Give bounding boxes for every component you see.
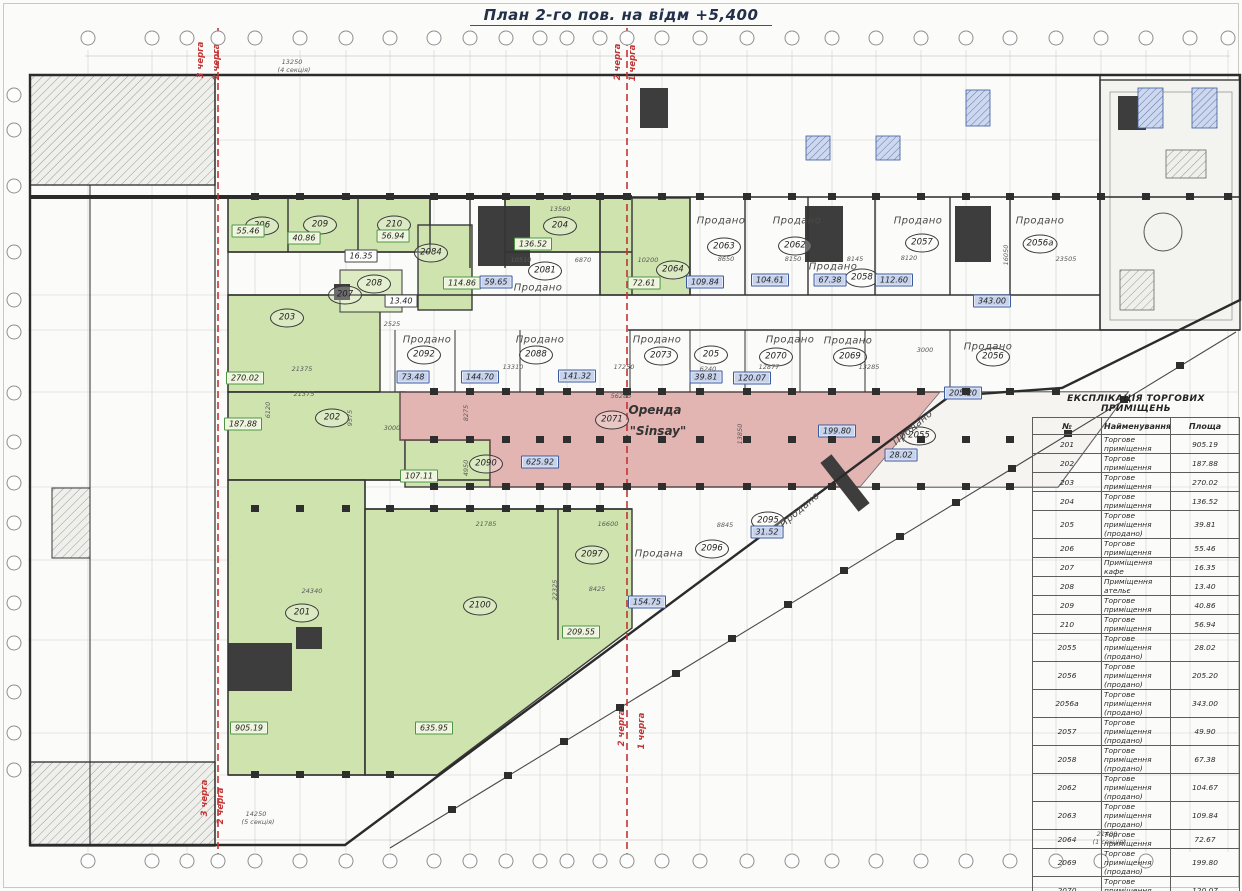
column-marker [788, 483, 796, 490]
axis-marker [959, 854, 974, 869]
column-marker [466, 483, 474, 490]
room-name: Торгове приміщення (продано) [1102, 774, 1171, 802]
area-box: 120.07 [733, 372, 771, 385]
axis-marker [211, 854, 226, 869]
room-name: Торгове приміщення (продано) [1102, 877, 1171, 891]
legend-row: 2069Торгове приміщення (продано)199.80 [1033, 849, 1240, 877]
dim-label: 6120 [264, 402, 272, 419]
dim-label: 14250 [246, 810, 267, 818]
axis-marker [1049, 31, 1064, 46]
column-marker [430, 483, 438, 490]
axis-marker [293, 854, 308, 869]
axis-marker [81, 854, 96, 869]
column-marker [466, 505, 474, 512]
room-name: Приміщення кафе [1102, 558, 1171, 577]
dim-label: 21375 [292, 365, 313, 373]
room-bubble-2092: 2092 [407, 346, 441, 365]
dim-label: 21785 [476, 520, 497, 528]
column-marker [1097, 193, 1105, 200]
phase-label: 1 черга [637, 713, 647, 750]
room-area: 905.19 [1171, 435, 1240, 454]
area-box: 209.55 [562, 626, 600, 639]
axis-marker [655, 854, 670, 869]
column-marker [1006, 483, 1014, 490]
sold-label: Продано [403, 335, 451, 346]
area-box: 56.94 [377, 230, 410, 243]
legend-row: 210Торгове приміщення56.94 [1033, 615, 1240, 634]
axis-marker [293, 31, 308, 46]
room-name: Торгове приміщення [1102, 596, 1171, 615]
axis-marker [180, 31, 195, 46]
area-box: 144.70 [461, 371, 499, 384]
room-number: 2069 [1033, 849, 1102, 877]
column-marker [952, 499, 960, 506]
legend-col-name: Найменування [1102, 418, 1171, 435]
axis-marker [914, 31, 929, 46]
axis-marker [248, 31, 263, 46]
axis-marker [7, 123, 22, 138]
legend-row: 2058Торгове приміщення (продано)67.38 [1033, 746, 1240, 774]
column-marker [251, 505, 259, 512]
room-area: 55.46 [1171, 539, 1240, 558]
area-box: 16.35 [345, 250, 378, 263]
area-box: 107.11 [400, 470, 438, 483]
column-marker [251, 771, 259, 778]
legend-row: 208Приміщення ательє13.40 [1033, 577, 1240, 596]
axis-marker [7, 88, 22, 103]
axis-marker [145, 31, 160, 46]
column-marker [623, 193, 631, 200]
sold-label: Продано [894, 216, 942, 227]
dim-label: 10200 [638, 256, 659, 264]
room-name: Торгове приміщення (продано) [1102, 634, 1171, 662]
sold-label: Продано [824, 336, 872, 347]
dim-label: 8145 [847, 255, 864, 263]
column-marker [962, 436, 970, 443]
axis-marker [1003, 31, 1018, 46]
axis-marker [7, 476, 22, 491]
legend-row: 205Торгове приміщення (продано)39.81 [1033, 511, 1240, 539]
column-marker [828, 388, 836, 395]
room-area: 136.52 [1171, 492, 1240, 511]
column-marker [596, 388, 604, 395]
dim-label: 8845 [717, 521, 734, 529]
area-box: 635.95 [415, 722, 453, 735]
axis-marker [7, 435, 22, 450]
dim-label: 9575 [346, 410, 354, 427]
axis-marker [7, 556, 22, 571]
column-marker [296, 771, 304, 778]
column-marker [1006, 388, 1014, 395]
dim-label: 8150 [785, 255, 802, 263]
column-marker [296, 193, 304, 200]
sold-label: Продано [514, 283, 562, 294]
axis-marker [785, 31, 800, 46]
axis-marker [1183, 31, 1198, 46]
axis-marker [7, 685, 22, 700]
column-marker [430, 193, 438, 200]
area-box: 270.02 [226, 372, 264, 385]
axis-marker [825, 31, 840, 46]
column-marker [696, 388, 704, 395]
area-box: 55.46 [232, 225, 265, 238]
column-marker [536, 483, 544, 490]
area-box: 905.19 [230, 722, 268, 735]
axis-marker [593, 854, 608, 869]
axis-marker [785, 854, 800, 869]
axis-marker [7, 596, 22, 611]
room-number: 207 [1033, 558, 1102, 577]
axis-marker [869, 31, 884, 46]
column-marker [430, 388, 438, 395]
room-area: 270.02 [1171, 473, 1240, 492]
column-marker [788, 388, 796, 395]
area-box: 136.52 [514, 238, 552, 251]
column-marker [536, 193, 544, 200]
area-box: 31.52 [751, 526, 784, 539]
dim-label: 16600 [598, 520, 619, 528]
column-marker [536, 436, 544, 443]
axis-marker [620, 31, 635, 46]
column-marker [560, 738, 568, 745]
axis-marker [959, 31, 974, 46]
legend-row: 2056Торгове приміщення (продано)205.20 [1033, 662, 1240, 690]
area-box: 28.02 [885, 449, 918, 462]
legend-row: 2062Торгове приміщення (продано)104.67 [1033, 774, 1240, 802]
column-marker [917, 193, 925, 200]
room-bubble-2084: 2084 [414, 244, 448, 263]
column-marker [962, 483, 970, 490]
room-number: 2063 [1033, 802, 1102, 830]
room-name: Торгове приміщення (продано) [1102, 746, 1171, 774]
column-marker [784, 601, 792, 608]
column-marker [1142, 193, 1150, 200]
axis-marker [1221, 31, 1236, 46]
column-marker [466, 193, 474, 200]
room-bubble-2057: 2057 [905, 234, 939, 253]
phase-label: 2 черга [617, 710, 627, 747]
dim-label: 3000 [917, 346, 934, 354]
legend-row: 2070Торгове приміщення (продано)120.07 [1033, 877, 1240, 891]
legend-row: 204Торгове приміщення136.52 [1033, 492, 1240, 511]
legend-row: 2057Торгове приміщення (продано)49.90 [1033, 718, 1240, 746]
column-marker [623, 388, 631, 395]
dim-label: 13250 [282, 58, 303, 66]
column-marker [658, 388, 666, 395]
axis-marker [145, 854, 160, 869]
floor-plan-sheet: План 2-го пов. на відм +5,400 2062092102… [0, 0, 1242, 891]
area-box: 625.92 [521, 456, 559, 469]
column-marker [788, 436, 796, 443]
axis-marker [7, 325, 22, 340]
room-bubble-207: 207 [328, 286, 362, 305]
axis-marker [7, 179, 22, 194]
dim-label: 2525 [384, 320, 401, 328]
column-marker [828, 193, 836, 200]
axis-marker [693, 854, 708, 869]
column-marker [616, 704, 624, 711]
axis-marker [7, 726, 22, 741]
column-marker [728, 635, 736, 642]
room-name: Приміщення ательє [1102, 577, 1171, 596]
dim-label: 10510 [511, 256, 532, 264]
legend-row: 209Торгове приміщення40.86 [1033, 596, 1240, 615]
column-marker [696, 436, 704, 443]
room-area: 120.07 [1171, 877, 1240, 891]
column-marker [502, 193, 510, 200]
dim-label: 4950 [462, 460, 470, 477]
axis-marker [7, 245, 22, 260]
phase-label: 2 черга [212, 44, 222, 81]
room-area: 40.86 [1171, 596, 1240, 615]
room-area: 205.20 [1171, 662, 1240, 690]
dim-label: 3000 [384, 424, 401, 432]
room-name: Торгове приміщення [1102, 830, 1171, 849]
column-marker [840, 567, 848, 574]
dim-label: 13285 [859, 363, 880, 371]
column-marker [872, 388, 880, 395]
phase-label: 1 черга [628, 45, 638, 82]
column-marker [342, 193, 350, 200]
column-marker [563, 483, 571, 490]
room-number: 2062 [1033, 774, 1102, 802]
column-marker [696, 483, 704, 490]
axis-marker [593, 31, 608, 46]
room-name: Торгове приміщення [1102, 454, 1171, 473]
phase-label: 2 черга [216, 788, 226, 825]
column-marker [448, 806, 456, 813]
legend-row: 2056аТоргове приміщення (продано)343.00 [1033, 690, 1240, 718]
area-box: 104.61 [751, 274, 789, 287]
dim-label: 8650 [718, 255, 735, 263]
axis-marker [248, 854, 263, 869]
column-marker [430, 505, 438, 512]
room-area: 67.38 [1171, 746, 1240, 774]
legend-row: 2063Торгове приміщення (продано)109.84 [1033, 802, 1240, 830]
room-area: 187.88 [1171, 454, 1240, 473]
room-name: Торгове приміщення (продано) [1102, 662, 1171, 690]
axis-marker [427, 854, 442, 869]
axis-marker [499, 854, 514, 869]
column-marker [788, 193, 796, 200]
column-marker [502, 505, 510, 512]
legend-col-number: № [1033, 418, 1102, 435]
axis-marker [7, 763, 22, 778]
column-marker [872, 483, 880, 490]
room-number: 2057 [1033, 718, 1102, 746]
legend-row: 202Торгове приміщення187.88 [1033, 454, 1240, 473]
column-marker [386, 193, 394, 200]
column-marker [342, 771, 350, 778]
column-marker [504, 772, 512, 779]
room-bubble-205: 205 [694, 346, 728, 365]
room-bubble-201: 201 [285, 604, 319, 623]
room-bubble-208: 208 [357, 275, 391, 294]
column-marker [743, 388, 751, 395]
dim-label: 22325 [551, 580, 559, 601]
legend-title: ЕКСПЛІКАЦІЯ ТОРГОВИХ ПРИМІЩЕНЬ [1032, 394, 1240, 414]
column-marker [658, 483, 666, 490]
legend-table: ЕКСПЛІКАЦІЯ ТОРГОВИХ ПРИМІЩЕНЬ № Наймену… [1032, 394, 1240, 891]
axis-marker [1139, 31, 1154, 46]
axis-marker [620, 854, 635, 869]
dim-label: 13560 [550, 205, 571, 213]
room-name: Торгове приміщення [1102, 492, 1171, 511]
room-number: 2056а [1033, 690, 1102, 718]
room-number: 210 [1033, 615, 1102, 634]
dim-label: 12877 [759, 363, 780, 371]
column-marker [917, 483, 925, 490]
area-box: 67.38 [814, 274, 847, 287]
legend-header-row: № Найменування Площа [1033, 418, 1240, 435]
column-marker [917, 436, 925, 443]
room-bubble-2088: 2088 [519, 346, 553, 365]
room-name: Торгове приміщення (продано) [1102, 718, 1171, 746]
column-marker [596, 483, 604, 490]
column-marker [596, 193, 604, 200]
room-area: 199.80 [1171, 849, 1240, 877]
column-marker [1052, 193, 1060, 200]
column-marker [466, 436, 474, 443]
dim-label: 16050 [1002, 245, 1010, 266]
axis-marker [7, 636, 22, 651]
area-box: 59.65 [480, 276, 513, 289]
axis-marker [427, 31, 442, 46]
axis-marker [533, 854, 548, 869]
room-number: 202 [1033, 454, 1102, 473]
column-marker [962, 388, 970, 395]
sold-label: Продано [633, 335, 681, 346]
room-bubble-2096: 2096 [695, 540, 729, 559]
column-marker [1006, 436, 1014, 443]
sold-label: Продана [635, 549, 684, 560]
axis-marker [869, 854, 884, 869]
axis-marker [914, 854, 929, 869]
room-area: 56.94 [1171, 615, 1240, 634]
dim-label: 23505 [1056, 255, 1077, 263]
column-marker [1008, 465, 1016, 472]
room-bubble-2100: 2100 [463, 597, 497, 616]
column-marker [1224, 193, 1232, 200]
column-marker [386, 505, 394, 512]
room-bubble-2071: 2071 [595, 411, 629, 430]
column-marker [502, 436, 510, 443]
column-marker [563, 388, 571, 395]
phase-label: 3 черга [200, 780, 210, 817]
room-name: Торгове приміщення (продано) [1102, 849, 1171, 877]
area-box: 13.40 [385, 295, 418, 308]
axis-marker [339, 854, 354, 869]
room-bubble-2056а: 2056а [1023, 235, 1058, 254]
column-marker [743, 193, 751, 200]
legend-row: 2064Торгове приміщення72.67 [1033, 830, 1240, 849]
room-number: 2055 [1033, 634, 1102, 662]
dim-label: (4 секція) [278, 66, 311, 74]
area-box: 343.00 [973, 295, 1011, 308]
room-bubble-203: 203 [270, 309, 304, 328]
room-area: 39.81 [1171, 511, 1240, 539]
sold-label: Продано [766, 335, 814, 346]
column-marker [386, 771, 394, 778]
axis-marker [499, 31, 514, 46]
column-marker [596, 436, 604, 443]
room-number: 203 [1033, 473, 1102, 492]
room-number: 209 [1033, 596, 1102, 615]
area-box: 40.86 [288, 232, 321, 245]
room-bubble-204: 204 [543, 217, 577, 236]
room-number: 205 [1033, 511, 1102, 539]
column-marker [696, 193, 704, 200]
column-marker [1176, 362, 1184, 369]
axis-marker [180, 854, 195, 869]
room-bubble-202: 202 [315, 409, 349, 428]
axis-marker [693, 31, 708, 46]
area-box: 109.84 [686, 276, 724, 289]
dim-label: 8275 [462, 405, 470, 422]
area-box: 141.32 [558, 370, 596, 383]
column-marker [563, 505, 571, 512]
column-marker [658, 436, 666, 443]
room-name: Торгове приміщення (продано) [1102, 511, 1171, 539]
legend-row: 207Приміщення кафе16.35 [1033, 558, 1240, 577]
axis-marker [7, 293, 22, 308]
area-box: 114.86 [443, 277, 481, 290]
axis-marker [1094, 31, 1109, 46]
room-bubble-2097: 2097 [575, 546, 609, 565]
sold-label: Продано [964, 342, 1012, 353]
room-bubble-2073: 2073 [644, 347, 678, 366]
column-marker [502, 388, 510, 395]
column-marker [563, 436, 571, 443]
column-marker [563, 193, 571, 200]
room-number: 2058 [1033, 746, 1102, 774]
area-box: 72.61 [628, 277, 661, 290]
room-name: Торгове приміщення (продано) [1102, 690, 1171, 718]
axis-marker [560, 854, 575, 869]
axis-marker [533, 31, 548, 46]
sold-label: Продано [697, 216, 745, 227]
room-number: 2070 [1033, 877, 1102, 891]
room-area: 104.67 [1171, 774, 1240, 802]
room-number: 204 [1033, 492, 1102, 511]
sold-label: Продано [809, 262, 857, 273]
legend-col-area: Площа [1171, 418, 1240, 435]
phase-label: 3 черга [196, 42, 206, 79]
column-marker [962, 193, 970, 200]
axis-marker [7, 516, 22, 531]
dim-label: 24340 [302, 587, 323, 595]
area-box: 112.60 [875, 274, 913, 287]
column-marker [251, 193, 259, 200]
column-marker [623, 483, 631, 490]
column-marker [872, 436, 880, 443]
room-name: Торгове приміщення [1102, 539, 1171, 558]
column-marker [896, 533, 904, 540]
column-marker [623, 436, 631, 443]
column-marker [1186, 193, 1194, 200]
dim-label: 13310 [503, 363, 524, 371]
column-marker [658, 193, 666, 200]
axis-marker [655, 31, 670, 46]
sold-label: Продано [1016, 216, 1064, 227]
room-bubble-2090: 2090 [469, 455, 503, 474]
room-number: 2056 [1033, 662, 1102, 690]
room-area: 343.00 [1171, 690, 1240, 718]
column-marker [466, 388, 474, 395]
area-box: 199.80 [818, 425, 856, 438]
room-number: 208 [1033, 577, 1102, 596]
tenant-name-line1: Оренда [628, 403, 681, 417]
